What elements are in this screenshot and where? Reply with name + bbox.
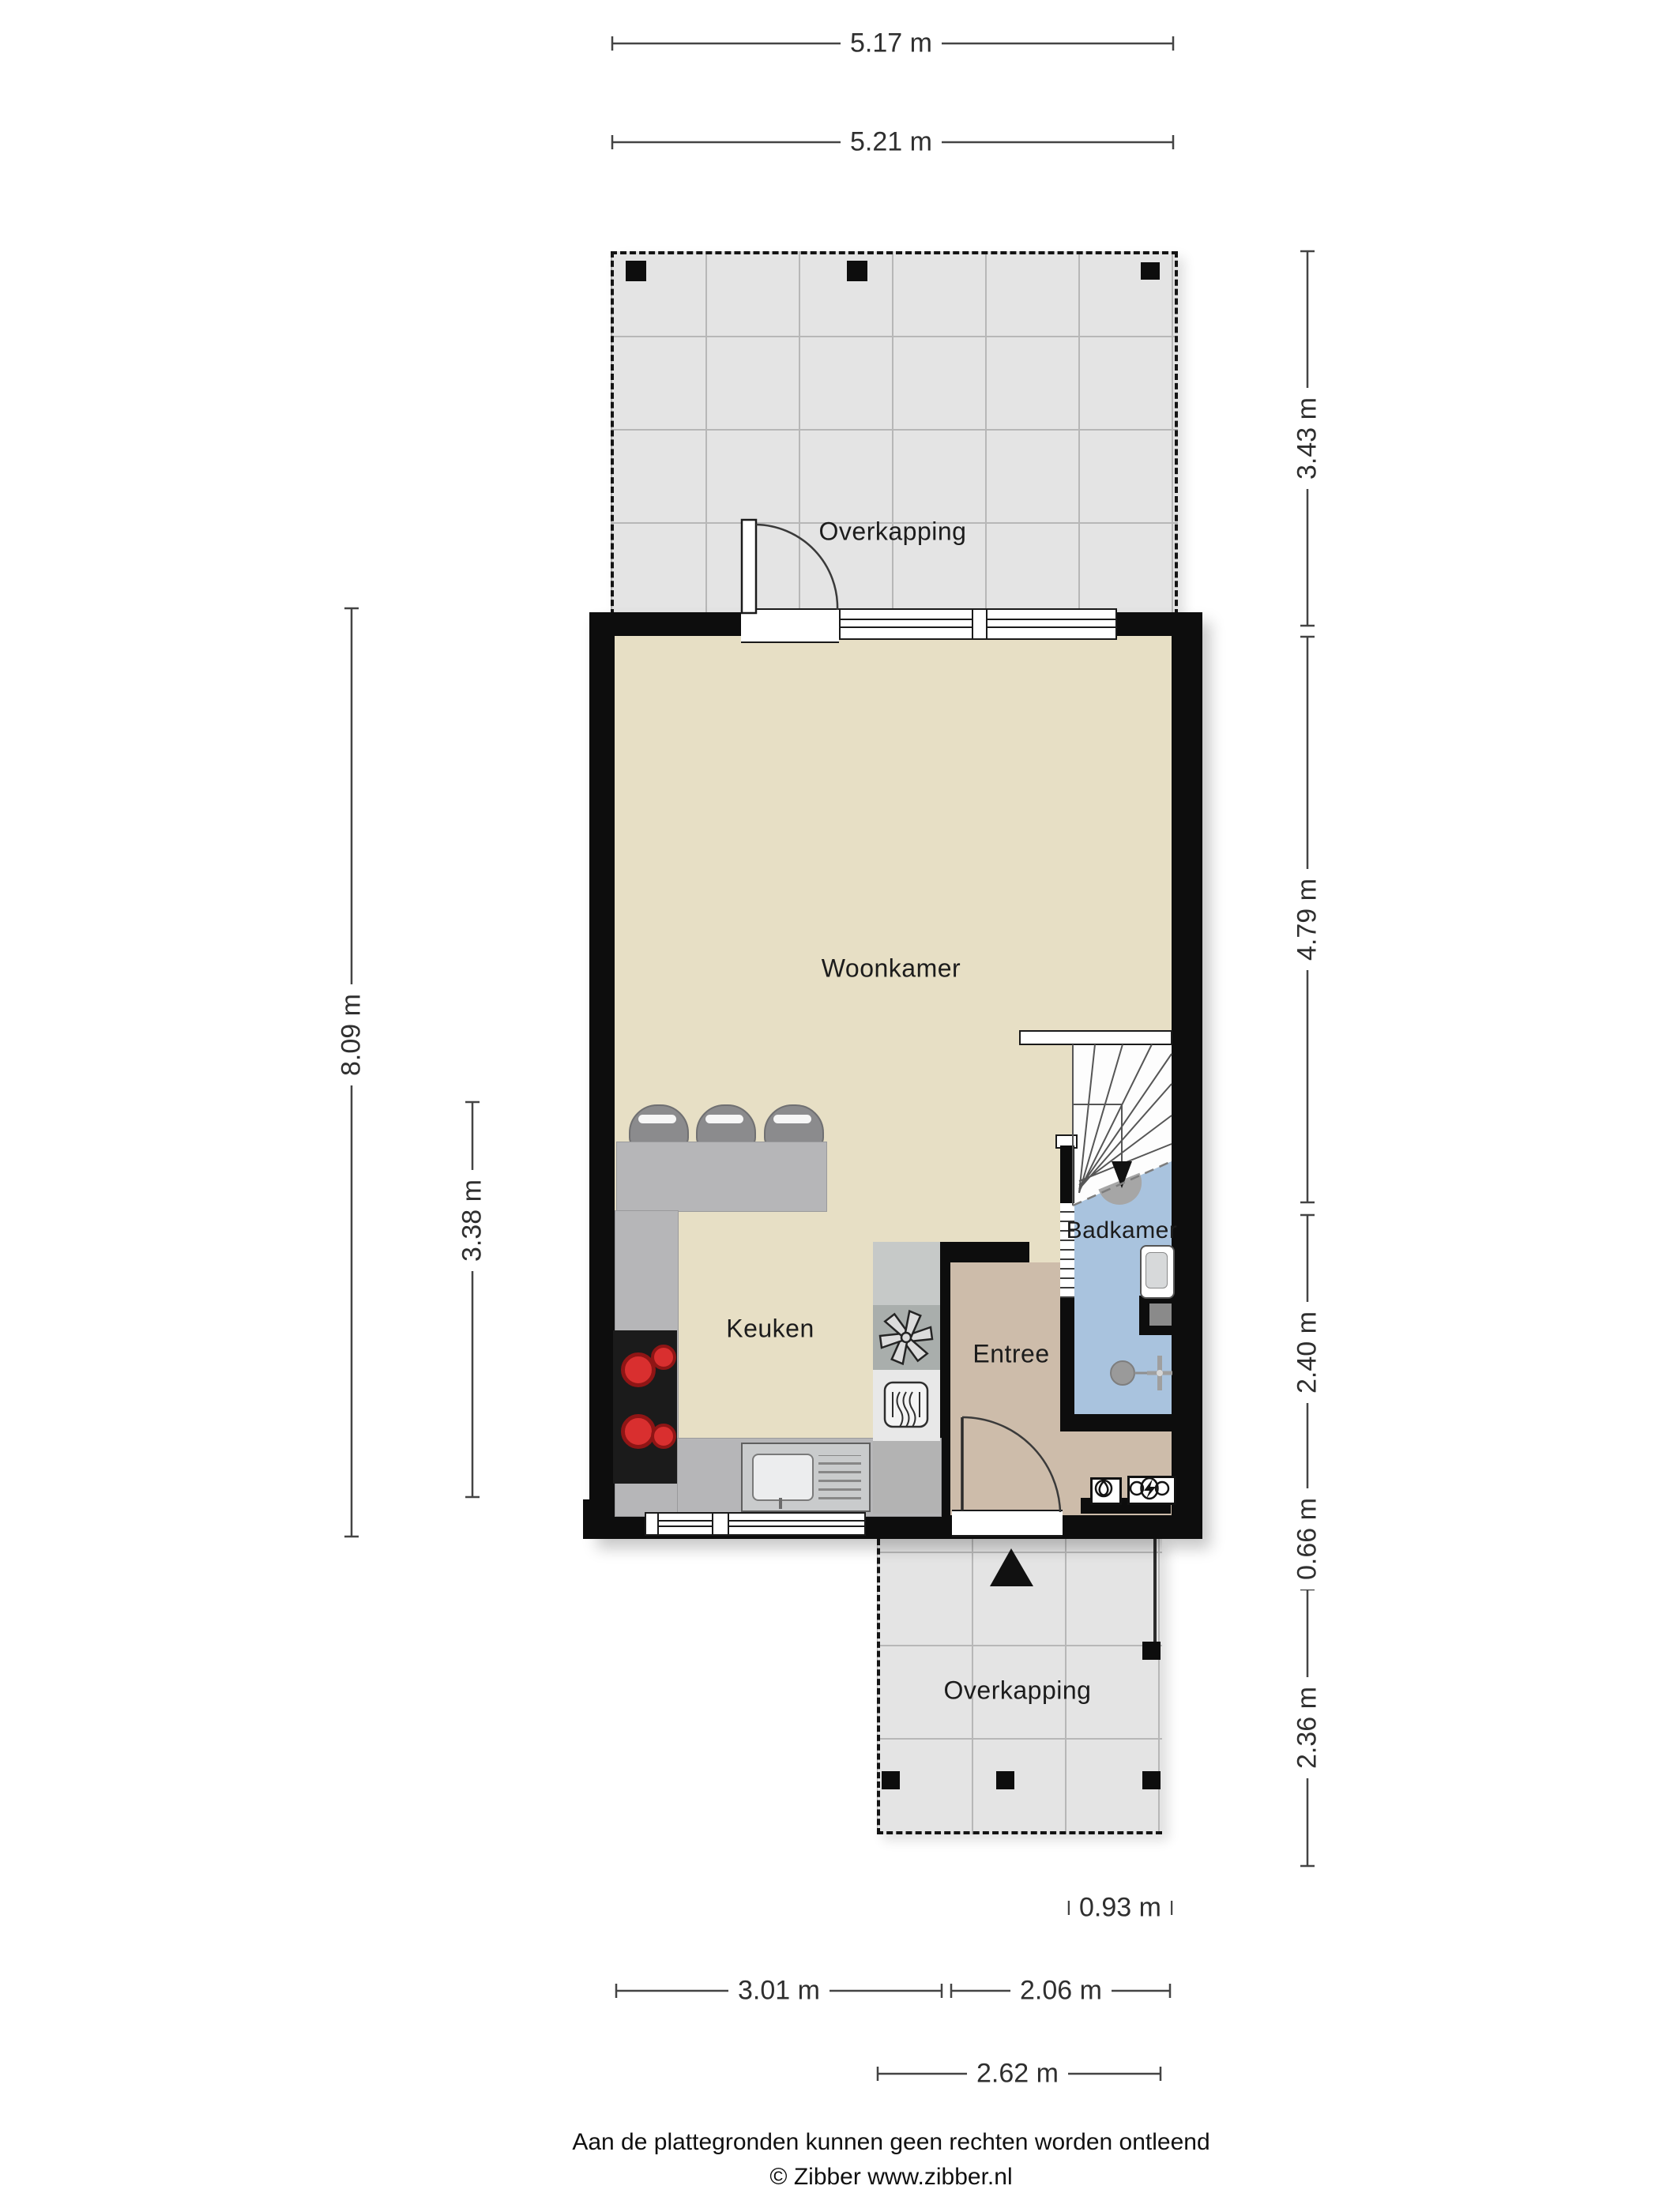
- sink-tap-icon: [779, 1498, 782, 1509]
- dim-bottom-301: 3.01 m: [728, 1976, 829, 2007]
- bath-sink: [1140, 1245, 1175, 1299]
- wall-entree-top-stub: [941, 1242, 1029, 1262]
- back-door-opening: [741, 608, 839, 643]
- dim-left-1: 8.09 m: [337, 984, 367, 1085]
- appliance-column-bottom: [873, 1441, 940, 1514]
- stool-highlight: [638, 1115, 676, 1123]
- canopy-post-icon: [1142, 1771, 1161, 1789]
- window-mullion: [712, 1512, 729, 1536]
- dim-bottom-262: 2.62 m: [967, 2059, 1068, 2090]
- dim-right-2: 4.79 m: [1292, 869, 1323, 970]
- light-point-meter-box: [1090, 1477, 1122, 1505]
- dim-bottom-206: 2.06 m: [1010, 1976, 1112, 2007]
- dim-top-2: 5.21 m: [841, 127, 942, 158]
- room-label-woonkamer: Woonkamer: [822, 954, 961, 984]
- dim-right-4: 0.66 m: [1292, 1488, 1323, 1589]
- dim-right-3: 2.40 m: [1292, 1302, 1323, 1403]
- sink-bowl: [752, 1454, 814, 1501]
- floorplan-canvas: Overkapping Woonkamer Keuken Entree Badk…: [0, 0, 1659, 2212]
- wall-badkamer-bottom: [1060, 1414, 1172, 1431]
- dim-bottom-093: 0.93 m: [1070, 1893, 1171, 1924]
- wall-badkamer-left-lower: [1060, 1298, 1074, 1414]
- appliance-column-top: [873, 1242, 940, 1305]
- room-label-keuken: Keuken: [726, 1315, 814, 1344]
- wall-badkamer-left-upper: [1060, 1145, 1074, 1203]
- footer-disclaimer: Aan de plattegronden kunnen geen rechten…: [572, 2129, 1209, 2156]
- room-label-overkapping-bottom: Overkapping: [944, 1676, 1092, 1706]
- stool-highlight: [705, 1115, 743, 1123]
- canopy-bottom-right-wall-line: [1153, 1539, 1157, 1648]
- toilet-cistern: [1149, 1303, 1172, 1326]
- canopy-post-icon: [996, 1771, 1014, 1789]
- cooktop: [613, 1330, 677, 1484]
- footer-copyright: © Zibber www.zibber.nl: [769, 2164, 1012, 2191]
- room-label-entree: Entree: [972, 1340, 1049, 1369]
- stair-railing: [1019, 1030, 1172, 1045]
- electricity-meter-box: [1127, 1476, 1176, 1505]
- front-door-opening: [952, 1510, 1063, 1537]
- canopy-post-icon: [626, 261, 646, 281]
- dim-right-1: 3.43 m: [1292, 388, 1323, 489]
- kitchen-bar-counter: [616, 1142, 827, 1212]
- burner-icon: [651, 1424, 676, 1449]
- extractor-box: [873, 1305, 940, 1370]
- burner-icon: [651, 1345, 676, 1370]
- canopy-post-icon: [1141, 262, 1160, 280]
- kitchen-window: [645, 1512, 866, 1536]
- burner-icon: [621, 1414, 656, 1449]
- window-end-block: [645, 1512, 659, 1536]
- room-label-badkamer: Badkamer: [1066, 1217, 1178, 1244]
- kitchen-sink-unit: [741, 1443, 871, 1512]
- window-mullion: [972, 608, 987, 640]
- dim-left-2: 3.38 m: [457, 1170, 488, 1271]
- sink-drainer: [818, 1455, 861, 1499]
- bath-sink-basin: [1145, 1252, 1168, 1288]
- stool-highlight: [773, 1115, 811, 1123]
- canopy-post-icon: [847, 261, 867, 281]
- oven-box: [873, 1370, 940, 1441]
- canopy-post-icon: [1142, 1642, 1161, 1660]
- canopy-post-icon: [882, 1771, 900, 1789]
- canopy-top-area: [611, 251, 1178, 615]
- room-label-overkapping-top: Overkapping: [819, 517, 967, 547]
- dim-right-5: 2.36 m: [1292, 1677, 1323, 1778]
- dim-top-1: 5.17 m: [841, 28, 942, 59]
